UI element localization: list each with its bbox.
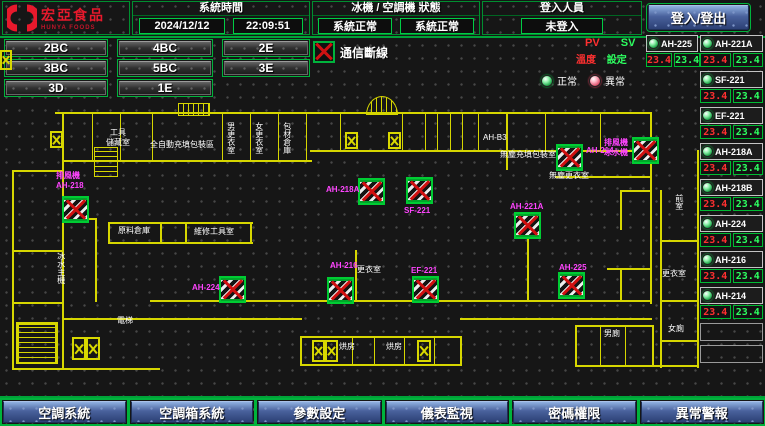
unit-button-SF-221[interactable]: SF-221 bbox=[700, 71, 763, 88]
unit-button-AH-218A[interactable]: AH-218A bbox=[700, 143, 763, 160]
unit-label: AH-216 bbox=[715, 255, 746, 265]
ceiling-fan-icon bbox=[178, 103, 210, 116]
unit-button-AH-224[interactable]: AH-224 bbox=[700, 215, 763, 232]
pv-value: 23.4 bbox=[700, 305, 731, 319]
ahu-icon[interactable] bbox=[62, 196, 89, 223]
spare-slot bbox=[700, 323, 763, 341]
unit-values: 23.423.4 bbox=[700, 305, 763, 319]
wall bbox=[250, 222, 252, 242]
wall bbox=[660, 340, 697, 342]
unit-button-AH-221A[interactable]: AH-221A bbox=[700, 35, 763, 52]
units-panel-left: AH-22523.423.4 bbox=[646, 35, 698, 71]
wall bbox=[300, 364, 462, 366]
wall bbox=[108, 222, 253, 224]
unit-label: AH-218B bbox=[715, 183, 753, 193]
unit-values: 23.423.4 bbox=[700, 161, 763, 175]
wall bbox=[545, 112, 546, 150]
status-led bbox=[702, 182, 713, 193]
status-led bbox=[702, 110, 713, 121]
unit-AH-216: AH-21623.423.4 bbox=[700, 251, 763, 283]
nav-abnormal-alarm[interactable]: 異常警報 bbox=[641, 401, 764, 423]
wall bbox=[450, 112, 451, 150]
plan-label: AH-224 bbox=[192, 284, 220, 293]
pv-value: 23.4 bbox=[700, 197, 731, 211]
plan-label: 排風機 bbox=[56, 172, 80, 181]
unit-values: 23.423.4 bbox=[700, 197, 763, 211]
ahu-icon[interactable] bbox=[556, 144, 583, 171]
ahu-icon[interactable] bbox=[632, 137, 659, 164]
damper-icon bbox=[417, 340, 431, 362]
plan-label: 更衣室 bbox=[662, 270, 686, 279]
wall bbox=[306, 112, 307, 160]
unit-values: 23.423.4 bbox=[700, 125, 763, 139]
wall bbox=[462, 112, 463, 150]
wall bbox=[620, 270, 622, 302]
bottom-nav-cell: 異常警報 bbox=[638, 398, 765, 426]
plan-label: 前室 bbox=[674, 194, 683, 210]
wall bbox=[607, 268, 652, 270]
wall bbox=[434, 338, 435, 364]
pv-value: 23.4 bbox=[700, 125, 731, 139]
wall bbox=[12, 250, 62, 252]
wall bbox=[108, 222, 110, 242]
wall bbox=[108, 242, 253, 244]
unit-button-AH-225[interactable]: AH-225 bbox=[646, 35, 698, 52]
sv-value: 23.4 bbox=[733, 89, 764, 103]
stairs-icon bbox=[18, 324, 56, 363]
wall bbox=[56, 322, 58, 364]
wall bbox=[402, 112, 403, 150]
damper-icon bbox=[86, 337, 100, 360]
wall bbox=[12, 302, 62, 304]
wall bbox=[16, 322, 58, 324]
damper-icon bbox=[72, 337, 86, 360]
sv-value: 23.4 bbox=[733, 233, 764, 247]
wall bbox=[620, 190, 622, 230]
damper-icon bbox=[50, 131, 63, 148]
unit-values: 23.423.4 bbox=[700, 269, 763, 283]
plan-label: SF-221 bbox=[404, 207, 430, 216]
wall bbox=[527, 238, 529, 302]
unit-label: AH-221A bbox=[715, 39, 753, 49]
status-led bbox=[702, 218, 713, 229]
ahu-icon[interactable] bbox=[406, 177, 433, 204]
plan-label: AH-218A bbox=[326, 186, 359, 195]
plan-label: 無塵更衣室 bbox=[549, 172, 589, 181]
bottom-nav-cell: 空調箱系統 bbox=[128, 398, 256, 426]
wall bbox=[355, 250, 357, 302]
wall bbox=[652, 325, 654, 365]
wall bbox=[12, 368, 160, 370]
plan-label: AH-218 bbox=[56, 182, 84, 191]
status-led bbox=[702, 38, 713, 49]
plan-label: 女廁 bbox=[668, 325, 684, 334]
wall bbox=[660, 240, 697, 242]
pv-value: 23.4 bbox=[700, 53, 731, 67]
plan-label: AH-216 bbox=[330, 262, 358, 271]
ahu-icon[interactable] bbox=[219, 276, 246, 303]
wall bbox=[62, 160, 312, 162]
sv-value: 23.4 bbox=[733, 161, 764, 175]
plan-label: 男更衣室 bbox=[226, 122, 235, 154]
plan-label: 儲藏室 bbox=[106, 139, 130, 148]
plan-label: AH-B3 bbox=[483, 134, 507, 143]
plan-label: EF-221 bbox=[411, 267, 437, 276]
unit-label: EF-221 bbox=[715, 111, 745, 121]
bottom-nav-cell: 密碼權限 bbox=[510, 398, 638, 426]
wall bbox=[300, 336, 302, 366]
plan-label: 冰水主機 bbox=[56, 252, 65, 284]
plan-label: AH-225 bbox=[559, 264, 587, 273]
wall bbox=[697, 150, 699, 368]
wall bbox=[404, 338, 405, 364]
damper-icon bbox=[345, 132, 358, 149]
status-led bbox=[648, 38, 659, 49]
wall bbox=[62, 112, 64, 368]
bottom-nav: 空調系統空調箱系統參數設定儀表監視密碼權限異常警報 bbox=[0, 398, 765, 426]
unit-values: 23.423.4 bbox=[646, 53, 698, 67]
nav-ac-system[interactable]: 空調系統 bbox=[3, 401, 126, 423]
unit-AH-225: AH-22523.423.4 bbox=[646, 35, 698, 67]
wall bbox=[185, 222, 187, 242]
plan-label: 男廁 bbox=[604, 330, 620, 339]
nav-password-permission[interactable]: 密碼權限 bbox=[513, 401, 636, 423]
plan-label: 女更衣室 bbox=[254, 122, 263, 154]
wall bbox=[575, 325, 653, 327]
wall bbox=[16, 322, 18, 364]
ahu-icon[interactable] bbox=[412, 276, 439, 303]
unit-button-AH-214[interactable]: AH-214 bbox=[700, 287, 763, 304]
wall bbox=[55, 112, 652, 114]
sv-value: 23.4 bbox=[733, 197, 764, 211]
pv-value: 23.4 bbox=[646, 53, 672, 67]
unit-AH-221A: AH-221A23.423.4 bbox=[700, 35, 763, 67]
unit-button-EF-221[interactable]: EF-221 bbox=[700, 107, 763, 124]
scada-screen: 宏亞食品 HUNYA FOODS 系統時間 2024/12/12 22:09:5… bbox=[0, 0, 765, 426]
nav-parameter-settings[interactable]: 參數設定 bbox=[258, 401, 381, 423]
unit-button-AH-216[interactable]: AH-216 bbox=[700, 251, 763, 268]
plan-label: AH-221A bbox=[510, 203, 543, 212]
nav-ahu-box-system[interactable]: 空調箱系統 bbox=[131, 401, 254, 423]
bottom-nav-cell: 參數設定 bbox=[255, 398, 383, 426]
wall bbox=[437, 112, 438, 150]
unit-label: AH-214 bbox=[715, 291, 746, 301]
damper-icon bbox=[388, 132, 401, 149]
wall bbox=[95, 218, 97, 302]
bottom-nav-cell: 儀表監視 bbox=[383, 398, 511, 426]
unit-AH-224: AH-22423.423.4 bbox=[700, 215, 763, 247]
status-led bbox=[702, 290, 713, 301]
damper-icon bbox=[325, 340, 338, 362]
pv-value: 23.4 bbox=[700, 161, 731, 175]
wall bbox=[660, 300, 697, 302]
unit-SF-221: SF-22123.423.4 bbox=[700, 71, 763, 103]
wall bbox=[160, 222, 162, 242]
wall bbox=[625, 325, 626, 365]
unit-label: SF-221 bbox=[715, 75, 745, 85]
damper-icon bbox=[0, 50, 12, 70]
spare-slot bbox=[700, 345, 763, 363]
plan-label: 維修工具室 bbox=[194, 228, 234, 237]
unit-label: AH-225 bbox=[661, 39, 692, 49]
wall bbox=[600, 325, 601, 365]
pv-value: 23.4 bbox=[700, 233, 731, 247]
wall bbox=[620, 190, 652, 192]
unit-AH-218A: AH-218A23.423.4 bbox=[700, 143, 763, 175]
wall bbox=[425, 112, 426, 150]
wall bbox=[300, 336, 462, 338]
wall bbox=[16, 362, 58, 364]
wall bbox=[374, 338, 375, 364]
plan-label: 全自動充填包裝區 bbox=[150, 141, 214, 150]
wall bbox=[250, 112, 251, 160]
wall bbox=[478, 112, 479, 150]
ahu-icon[interactable] bbox=[358, 178, 385, 205]
plan-label: 無塵充填包裝室 bbox=[500, 151, 556, 160]
wall bbox=[460, 318, 652, 320]
wall bbox=[600, 112, 601, 150]
unit-AH-214: AH-21423.423.4 bbox=[700, 287, 763, 319]
unit-EF-221: EF-22123.423.4 bbox=[700, 107, 763, 139]
plan-label: 更衣室 bbox=[357, 266, 381, 275]
pv-value: 23.4 bbox=[700, 269, 731, 283]
wall bbox=[12, 170, 14, 370]
status-led bbox=[702, 146, 713, 157]
wall bbox=[460, 336, 462, 366]
unit-button-AH-218B[interactable]: AH-218B bbox=[700, 179, 763, 196]
ahu-icon[interactable] bbox=[514, 212, 541, 239]
unit-values: 23.423.4 bbox=[700, 53, 763, 67]
wall bbox=[62, 318, 302, 320]
wall bbox=[278, 112, 279, 160]
ahu-icon[interactable] bbox=[327, 277, 354, 304]
unit-label: AH-218A bbox=[715, 147, 753, 157]
wall bbox=[152, 112, 153, 160]
pv-value: 23.4 bbox=[700, 89, 731, 103]
plan-label: 原料倉庫 bbox=[118, 227, 150, 236]
stairs-icon bbox=[94, 147, 118, 177]
sv-value: 23.4 bbox=[733, 269, 764, 283]
plan-label: 排風機 bbox=[604, 139, 628, 148]
plan-label: 烘房 bbox=[339, 343, 355, 352]
sv-value: 23.4 bbox=[674, 53, 700, 67]
status-led bbox=[702, 74, 713, 85]
units-panel-right: AH-221A23.423.4SF-22123.423.4EF-22123.42… bbox=[700, 35, 763, 367]
unit-AH-218B: AH-218B23.423.4 bbox=[700, 179, 763, 211]
nav-meter-monitoring[interactable]: 儀表監視 bbox=[386, 401, 509, 423]
plan-label: 工具 bbox=[110, 129, 126, 138]
bottom-nav-cell: 空調系統 bbox=[0, 398, 128, 426]
sv-value: 23.4 bbox=[733, 305, 764, 319]
plan-label: 冰水機 bbox=[604, 149, 628, 158]
status-led bbox=[702, 254, 713, 265]
ahu-icon[interactable] bbox=[558, 272, 585, 299]
sv-value: 23.4 bbox=[733, 53, 764, 67]
wall bbox=[575, 325, 577, 367]
plan-label: 烘房 bbox=[386, 343, 402, 352]
unit-values: 23.423.4 bbox=[700, 89, 763, 103]
unit-label: AH-224 bbox=[715, 219, 746, 229]
plan-label: 包材倉庫 bbox=[282, 122, 291, 154]
unit-values: 23.423.4 bbox=[700, 233, 763, 247]
wall bbox=[340, 112, 341, 150]
wall bbox=[575, 365, 697, 367]
sv-value: 23.4 bbox=[733, 125, 764, 139]
damper-icon bbox=[312, 340, 325, 362]
plan-label: 電梯 bbox=[117, 317, 133, 326]
wall bbox=[222, 112, 223, 160]
wall bbox=[92, 112, 93, 160]
